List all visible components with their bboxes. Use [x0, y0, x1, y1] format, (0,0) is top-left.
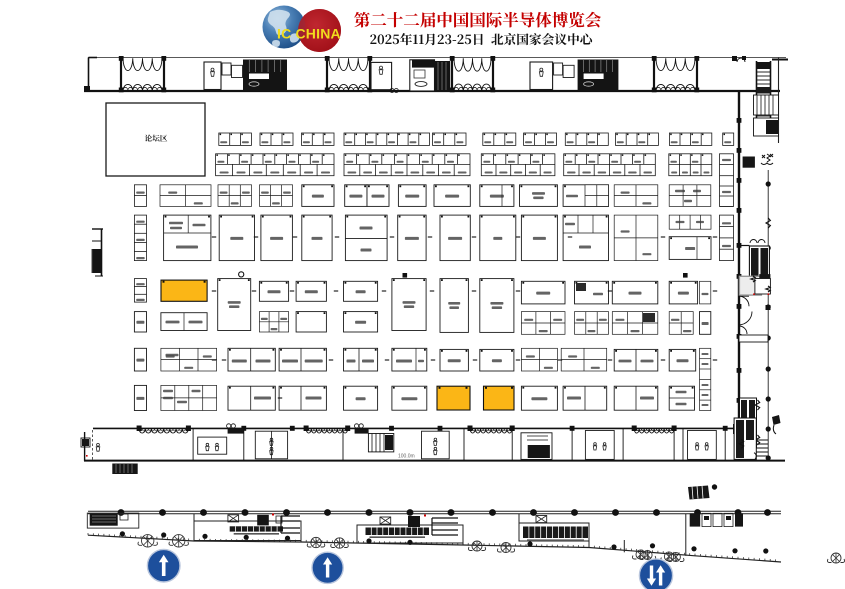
svg-text:IC CHINA: IC CHINA: [277, 26, 341, 42]
svg-text:100.0m: 100.0m: [398, 454, 415, 460]
